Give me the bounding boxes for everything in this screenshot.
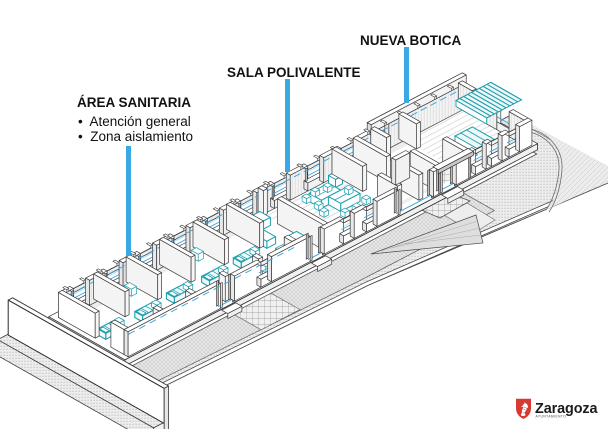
svg-text:AYUNTAMIENTO: AYUNTAMIENTO xyxy=(536,414,567,418)
